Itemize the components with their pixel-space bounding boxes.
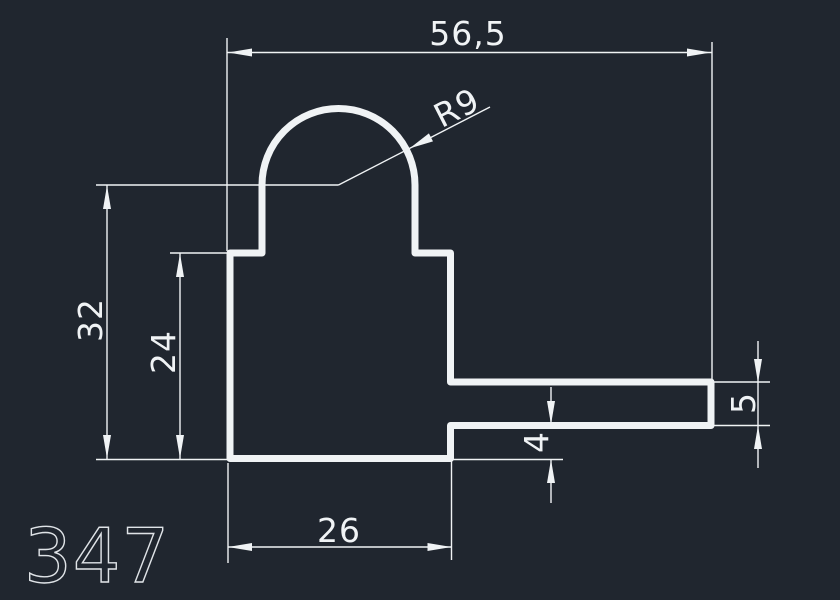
arrowhead-down	[547, 401, 555, 425]
dim-notch-height: 4	[452, 387, 563, 503]
arrowhead-up	[103, 186, 111, 210]
arrowhead-up	[547, 460, 555, 484]
dim-label-radius: R9	[427, 80, 486, 136]
arrowhead-down	[103, 435, 111, 459]
arrowhead-up	[176, 254, 184, 278]
arrowhead-up	[754, 426, 762, 450]
technical-drawing: 56,5 R9 32 24	[0, 0, 840, 600]
arrowhead-radius	[410, 133, 433, 148]
arrowhead-left	[228, 49, 252, 57]
part-number-label: 347	[24, 512, 170, 600]
arrowhead-left	[228, 543, 252, 551]
dim-label-bottom-width: 26	[317, 511, 361, 550]
dim-label-top-width: 56,5	[429, 14, 506, 53]
dim-overall-height: 32	[71, 185, 339, 460]
arrowhead-right	[687, 49, 711, 57]
dim-bottom-width: 26	[228, 460, 452, 563]
dim-arm-thickness: 5	[713, 341, 770, 468]
profile-outline	[230, 109, 711, 459]
arrowhead-down	[754, 359, 762, 383]
arrowhead-right	[428, 543, 452, 551]
cad-drawing-canvas: 56,5 R9 32 24	[0, 0, 840, 600]
dim-label-upper-body-height: 24	[144, 330, 183, 374]
dim-upper-body-height: 24	[144, 253, 227, 459]
dim-label-arm-thickness: 5	[724, 392, 763, 414]
dim-label-overall-height: 32	[71, 298, 110, 342]
dim-label-notch-height: 4	[517, 431, 556, 453]
arrowhead-down	[176, 435, 184, 459]
dim-top-width: 56,5	[227, 14, 712, 380]
